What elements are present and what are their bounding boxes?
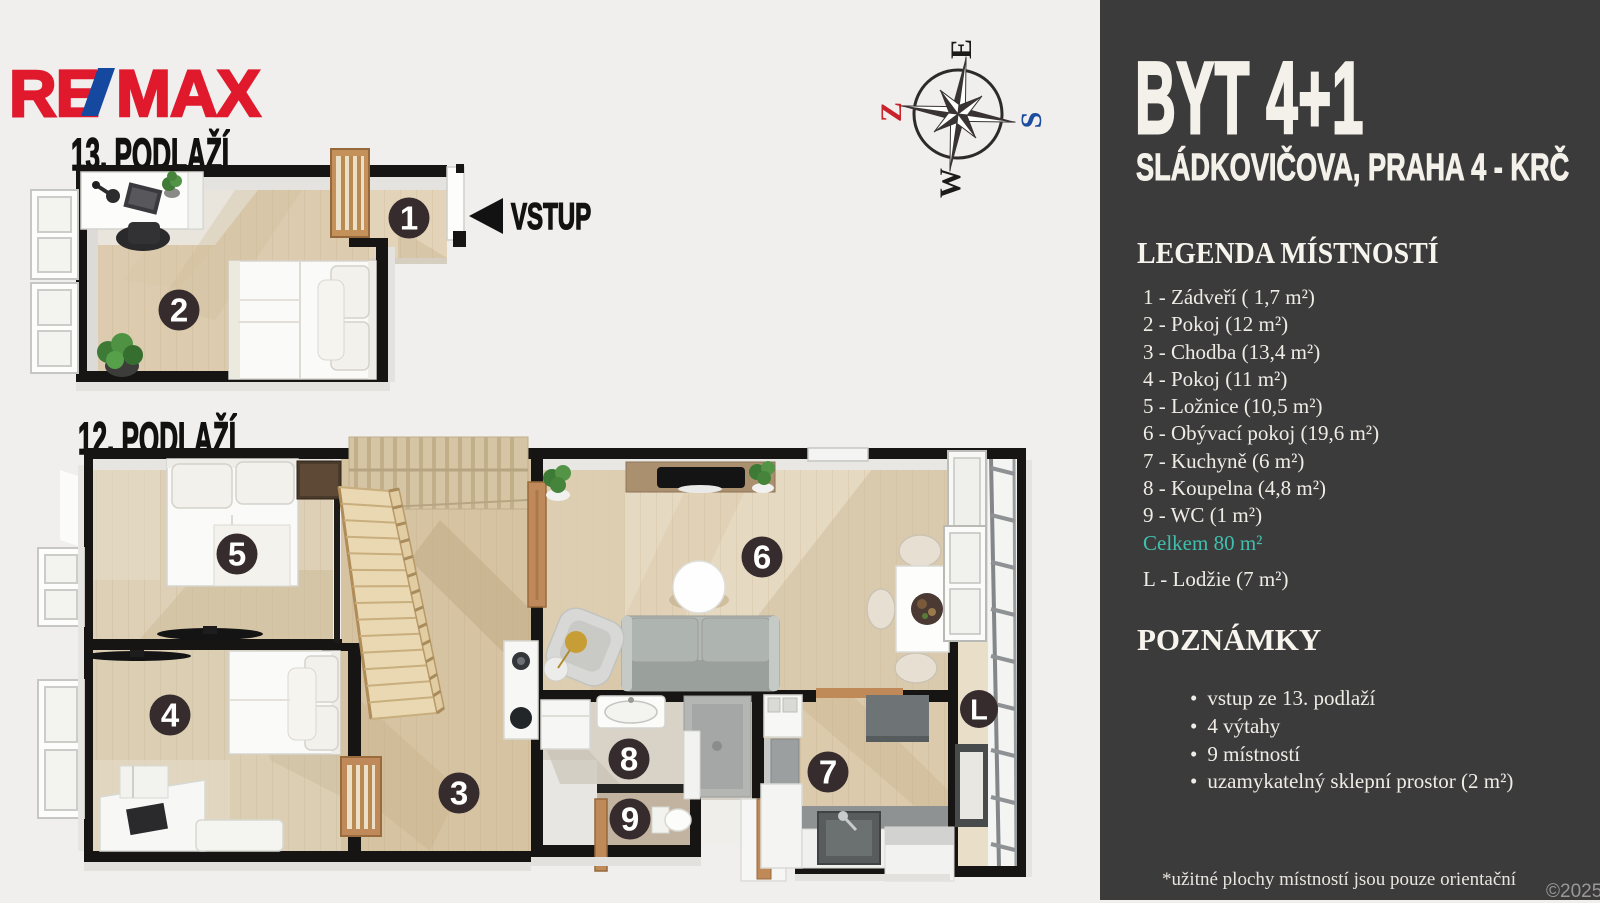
svg-text:2: 2 [170, 292, 188, 329]
svg-text:MAX: MAX [116, 56, 261, 130]
svg-text:RE: RE [9, 56, 99, 130]
svg-text:6: 6 [753, 539, 771, 576]
svg-text:1: 1 [400, 200, 418, 237]
svg-text:5: 5 [228, 536, 246, 573]
svg-text:Z: Z [875, 102, 908, 122]
svg-text:L: L [970, 694, 988, 726]
svg-text:7: 7 [819, 754, 837, 791]
svg-text:9: 9 [621, 801, 639, 838]
svg-text:8: 8 [620, 741, 638, 778]
svg-text:4: 4 [161, 697, 180, 734]
svg-text:E: E [945, 39, 978, 59]
svg-text:3: 3 [450, 775, 468, 812]
svg-text:VSTUP: VSTUP [511, 196, 591, 238]
svg-text:S: S [1015, 112, 1048, 129]
svg-text:W: W [934, 168, 967, 198]
